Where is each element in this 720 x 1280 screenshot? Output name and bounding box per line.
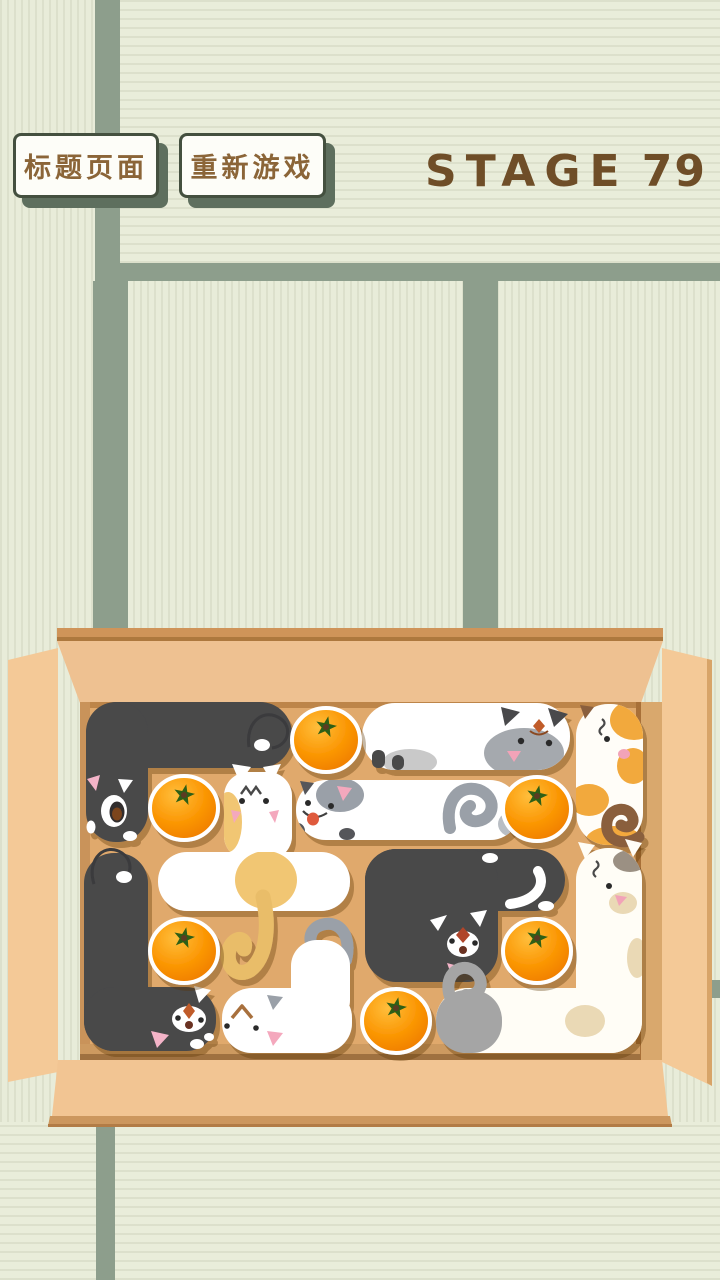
eye [239,798,245,804]
cat-siamese[interactable] [362,703,570,778]
eye [175,1015,181,1021]
orange-1 [292,708,360,772]
box-back-rim-line [57,637,663,641]
puzzle-board [0,600,720,1160]
gray-head-patch [316,778,364,812]
beige-muzzle [609,892,637,914]
tatami-band-vertical-mid [463,281,498,628]
stage-number: 79 [642,146,707,197]
tail-tip [254,739,270,751]
orange-6 [362,989,430,1053]
tatami-band-horizontal [95,263,720,281]
eye [606,883,612,889]
mouth [618,749,630,759]
eye [449,938,455,944]
brown-tail [607,809,639,841]
tatami-mat-top [119,0,720,263]
tatami-band-vertical-left [93,281,128,628]
orange-2 [150,776,218,840]
eye [305,800,311,806]
restart-game-button[interactable]: 重新游戏 [179,133,326,198]
eye [518,738,524,744]
title-page-button[interactable]: 标题页面 [13,133,159,198]
game-screen: 标题页面 重新游戏 STAGE 79 [0,0,720,1280]
orange-3 [503,777,571,841]
box-right-flap [662,648,712,1086]
eye [224,1023,230,1029]
orange-4 [150,919,218,983]
stage-label: STAGE [425,146,629,197]
orange-5 [503,919,571,983]
cat-gray-patch[interactable] [291,778,528,840]
box-back-wall [57,641,663,703]
eye [604,736,610,742]
box-left-flap [8,648,58,1082]
tail-tip [116,871,132,883]
stage-indicator: STAGE 79 [425,146,707,196]
box-bottom-flap [52,1060,668,1116]
tongue [307,813,319,826]
dark-paw [372,750,385,768]
gray-rump [436,990,502,1053]
